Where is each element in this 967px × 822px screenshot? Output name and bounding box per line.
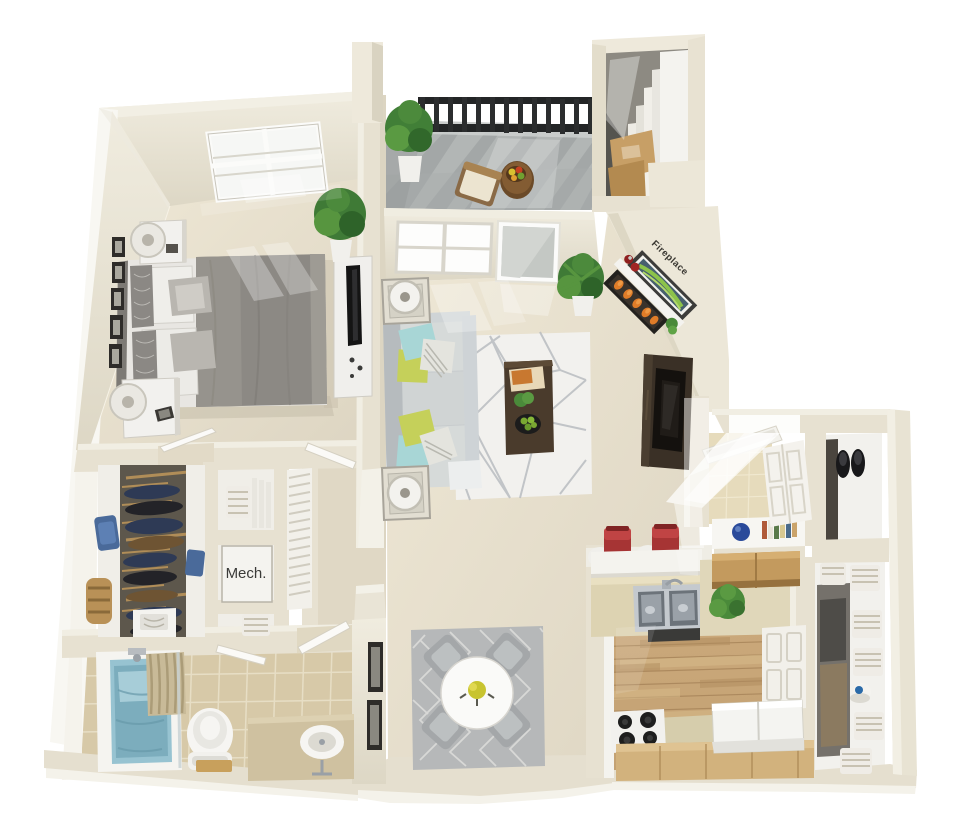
svg-text:Mech.: Mech. <box>226 565 267 582</box>
